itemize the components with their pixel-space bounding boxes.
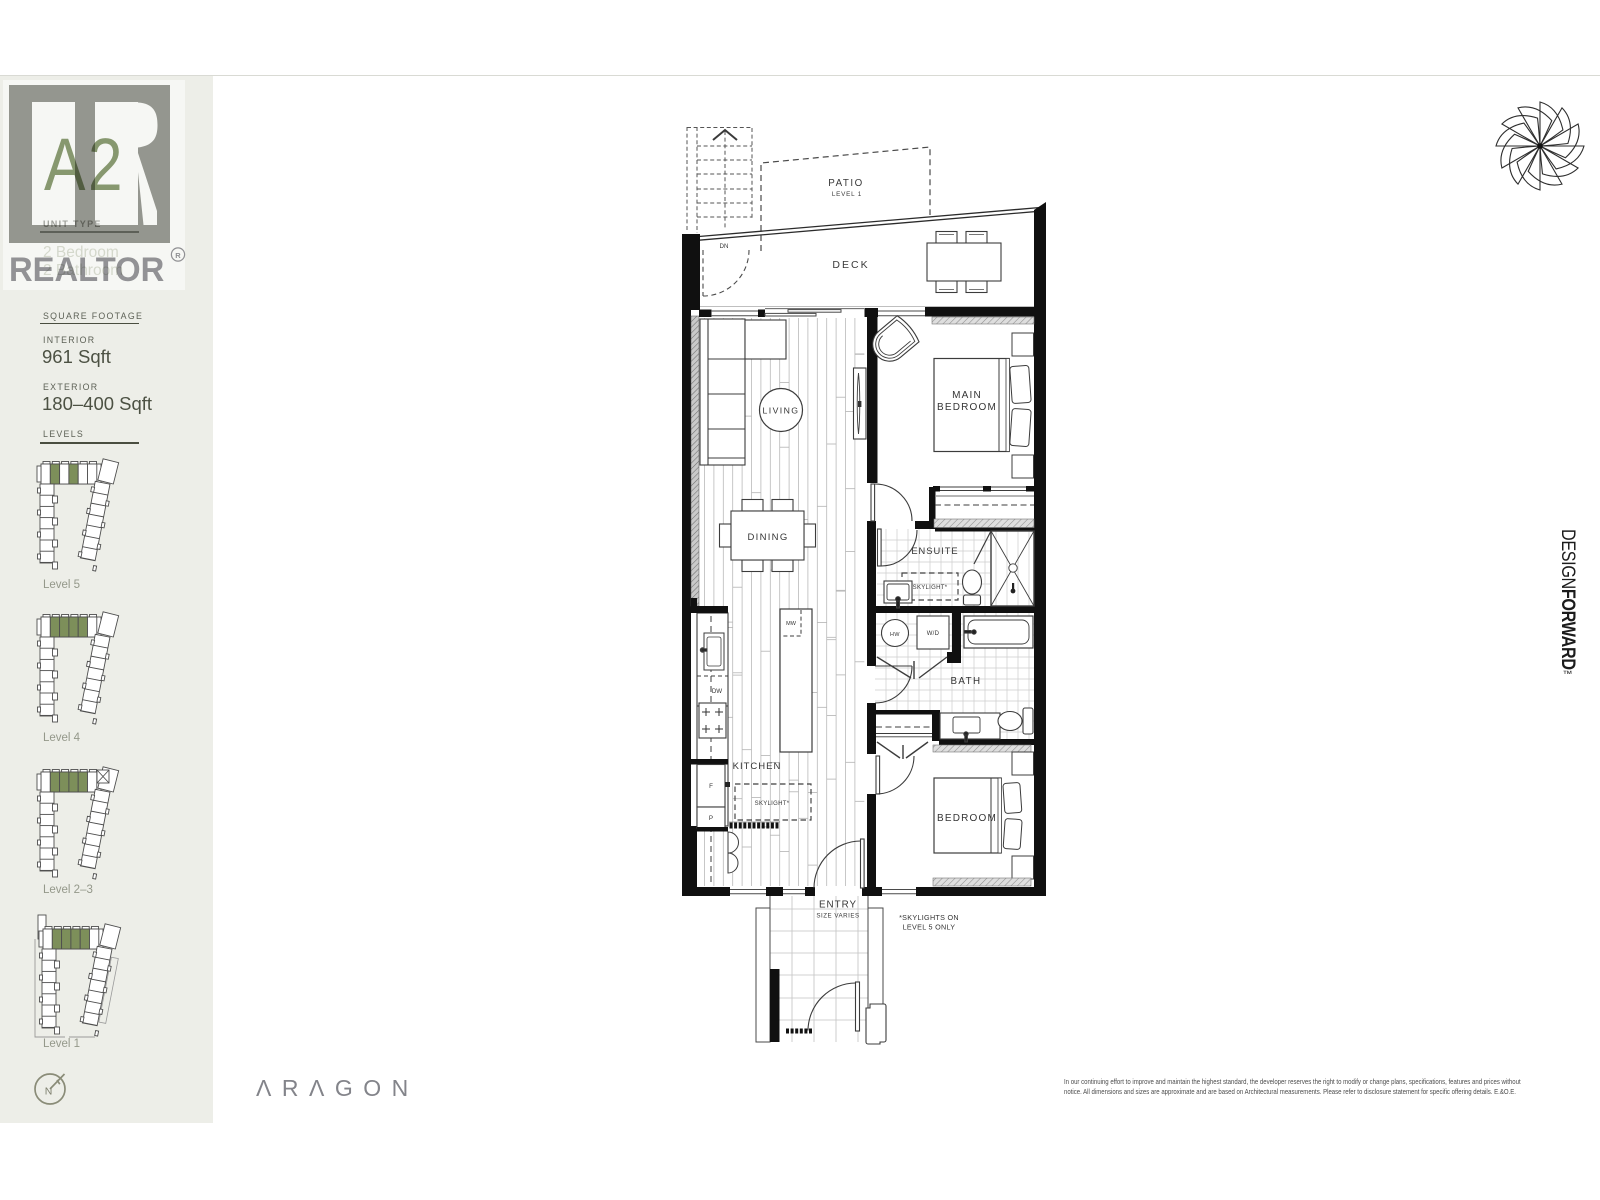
svg-text:N: N <box>45 1086 53 1098</box>
svg-text:R: R <box>175 251 181 260</box>
svg-text:REALTOR: REALTOR <box>9 251 164 289</box>
